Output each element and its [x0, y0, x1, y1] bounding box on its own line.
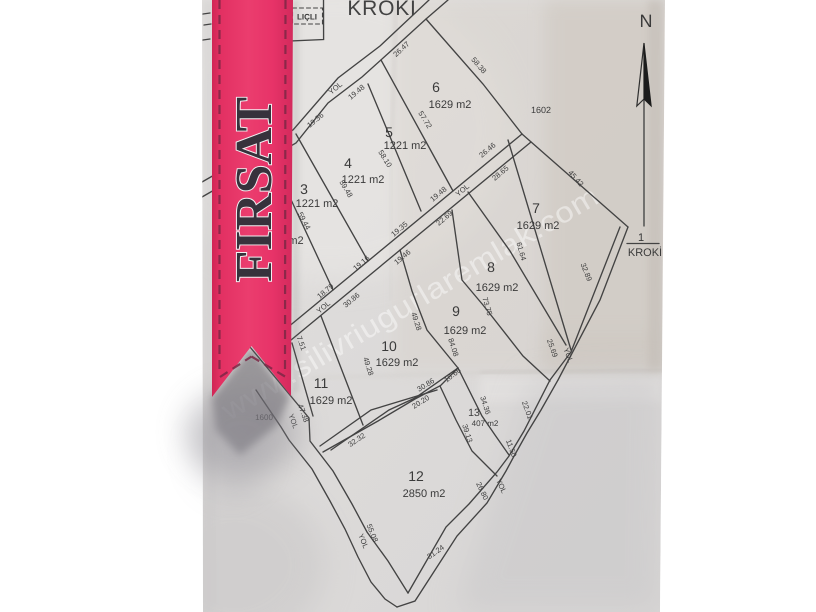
svg-text:1629 m2: 1629 m2	[376, 357, 419, 369]
svg-text:1: 1	[638, 232, 644, 244]
svg-text:2850 m2: 2850 m2	[403, 488, 446, 500]
svg-text:N: N	[640, 11, 653, 31]
svg-text:FIRSAT: FIRSAT	[226, 97, 283, 282]
svg-text:1602: 1602	[531, 105, 551, 115]
svg-text:8: 8	[487, 259, 495, 275]
svg-text:6: 6	[432, 79, 440, 95]
svg-text:1629 m2: 1629 m2	[429, 99, 472, 111]
svg-text:407 m2: 407 m2	[472, 419, 499, 428]
svg-text:1629 m2: 1629 m2	[444, 325, 487, 337]
svg-text:12: 12	[408, 468, 424, 484]
svg-text:1629 m2: 1629 m2	[310, 395, 353, 407]
svg-text:1221 m2: 1221 m2	[296, 198, 339, 210]
svg-text:10: 10	[381, 338, 397, 354]
svg-text:11: 11	[314, 375, 329, 391]
svg-text:KROKİ: KROKİ	[628, 246, 662, 259]
svg-text:1221 m2: 1221 m2	[384, 140, 427, 152]
svg-text:4: 4	[344, 155, 352, 171]
svg-text:5: 5	[385, 124, 393, 140]
svg-text:13: 13	[468, 407, 480, 419]
svg-text:7: 7	[532, 200, 540, 216]
svg-text:1629 m2: 1629 m2	[517, 220, 560, 232]
svg-text:KROKİ: KROKİ	[347, 0, 416, 20]
svg-text:9: 9	[452, 303, 460, 319]
svg-text:1629 m2: 1629 m2	[476, 282, 519, 294]
